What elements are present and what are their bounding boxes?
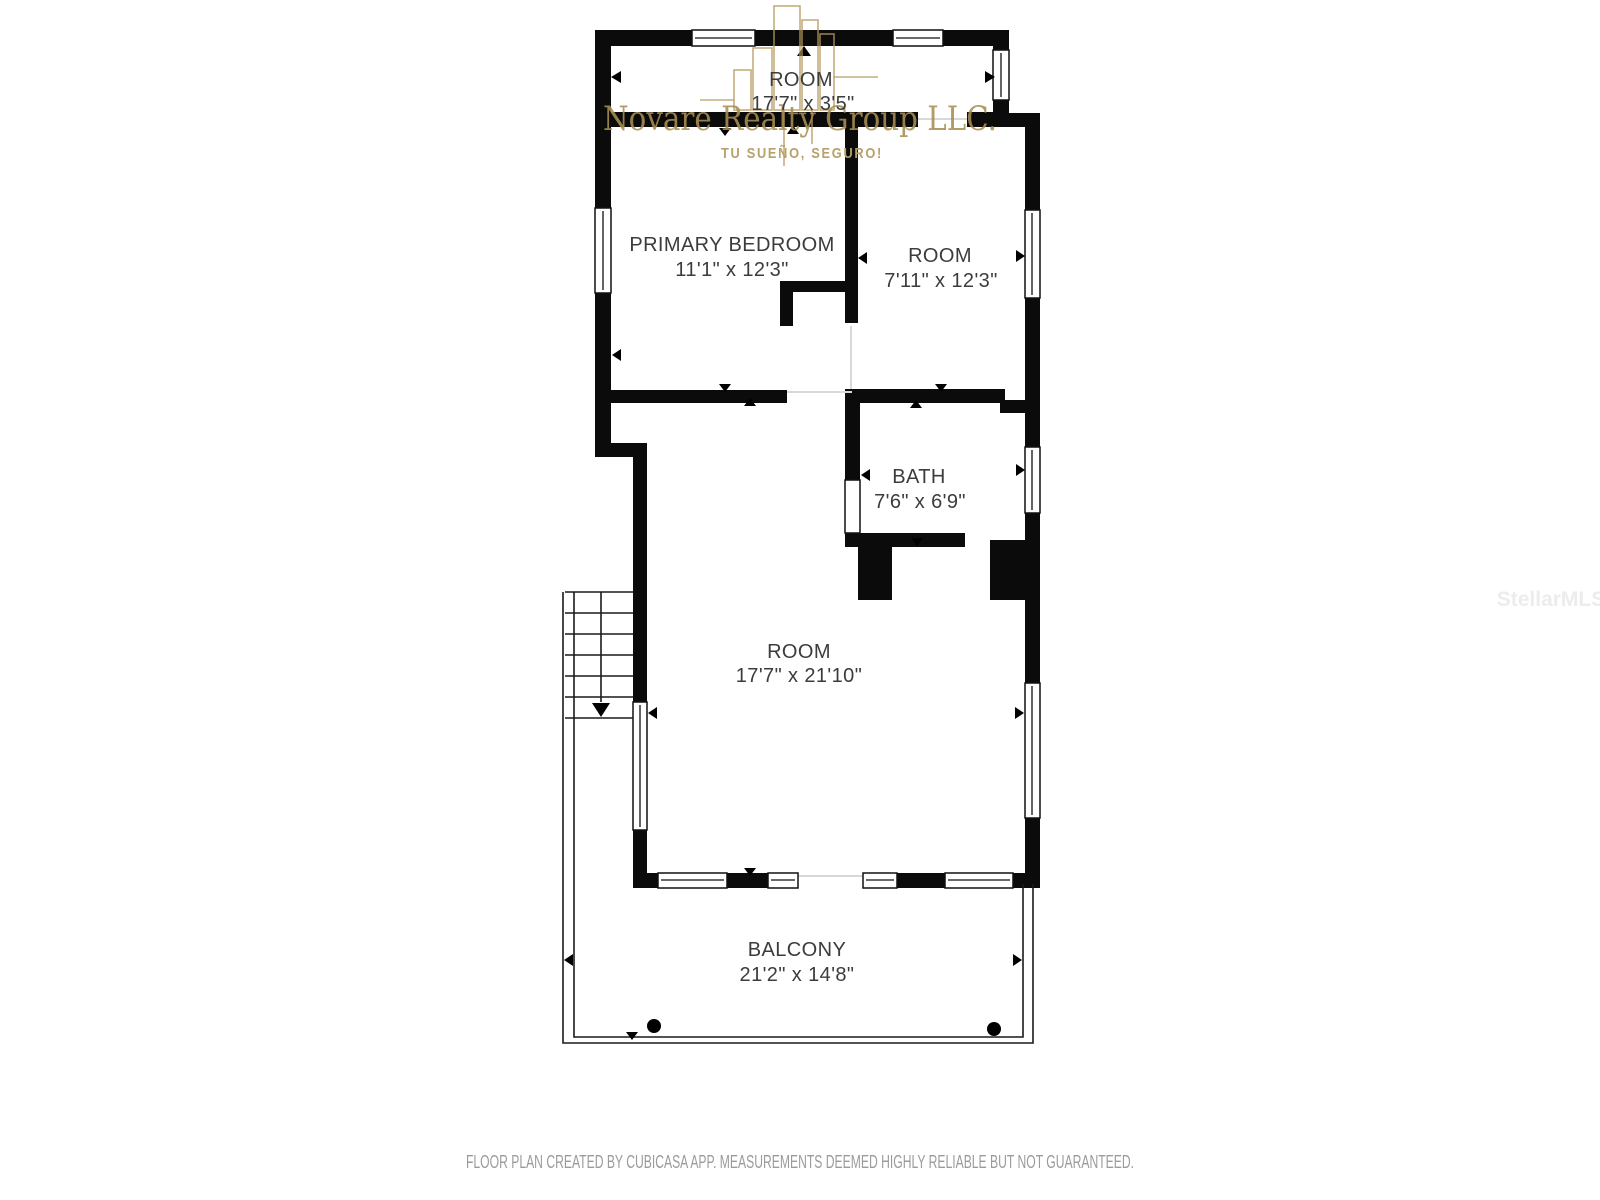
wall-segment: [780, 281, 793, 326]
staircase: [565, 592, 633, 718]
room-label: ROOM: [908, 245, 972, 267]
door-arrow: [1016, 464, 1025, 476]
door-arrow: [797, 46, 811, 56]
window: [1025, 447, 1040, 513]
wall-segment: [633, 443, 647, 702]
sliding-door: [845, 480, 860, 533]
room-label: BATH: [892, 466, 945, 488]
door-arrow: [858, 252, 867, 264]
wall-segment: [1013, 873, 1040, 888]
brokerage-tagline-watermark: TU SUEÑO, SEGURO!: [721, 144, 883, 162]
floor-plan-canvas: Novare Realty Group LLC. TU SUEÑO, SEGUR…: [0, 0, 1600, 1200]
room-label: ROOM: [767, 641, 831, 663]
wall-segment: [1000, 400, 1028, 413]
stellar-mls-watermark: StellarMLS: [1497, 588, 1600, 611]
window: [692, 30, 755, 46]
window: [1025, 683, 1040, 818]
window: [658, 873, 727, 888]
wall-segment: [727, 873, 768, 888]
door-arrow: [626, 1032, 638, 1040]
room-dimensions: 17'7" x 21'10": [736, 665, 862, 687]
window: [595, 208, 611, 293]
door-arrow: [861, 469, 870, 481]
window: [993, 50, 1009, 100]
wall-segment: [858, 547, 892, 600]
door-arrow: [612, 349, 621, 361]
balcony-post: [647, 1019, 661, 1033]
wall-segment: [609, 390, 787, 403]
door-arrow: [611, 71, 621, 83]
door-arrow: [1015, 707, 1024, 719]
cubicasa-disclaimer: FLOOR PLAN CREATED BY CUBICASA APP. MEAS…: [466, 1152, 1134, 1172]
door-arrow: [1013, 954, 1022, 966]
door-arrow: [648, 707, 657, 719]
window: [945, 873, 1013, 888]
wall-segment: [990, 540, 1040, 600]
door-arrow: [564, 954, 573, 966]
room-dimensions: 17'7" x 3'5": [751, 93, 854, 115]
balcony-post: [987, 1022, 1001, 1036]
room-labels: ROOM 17'7" x 3'5" PRIMARY BEDROOM 11'1" …: [629, 69, 997, 986]
window: [1025, 210, 1040, 298]
wall-segment: [633, 873, 658, 888]
floor-plan-page: Novare Realty Group LLC. TU SUEÑO, SEGUR…: [0, 0, 1600, 1200]
wall-segment: [845, 112, 858, 323]
window: [633, 702, 647, 830]
window: [863, 873, 897, 888]
room-dimensions: 7'6" x 6'9": [874, 491, 966, 513]
room-label: PRIMARY BEDROOM: [629, 234, 834, 256]
window: [768, 873, 798, 888]
room-dimensions: 11'1" x 12'3": [675, 259, 788, 281]
room-label: ROOM: [769, 69, 833, 91]
stairs-down-arrow: [592, 703, 610, 717]
wall-segment: [897, 873, 945, 888]
door-arrow: [1016, 250, 1025, 262]
wall-segment: [852, 389, 1005, 403]
room-dimensions: 21'2" x 14'8": [740, 964, 855, 986]
wall-segment: [858, 533, 965, 547]
room-dimensions: 7'11" x 12'3": [884, 270, 997, 292]
wall-segment: [845, 389, 860, 480]
window: [893, 30, 943, 46]
room-label: BALCONY: [748, 939, 846, 961]
wall-segment: [845, 533, 860, 547]
